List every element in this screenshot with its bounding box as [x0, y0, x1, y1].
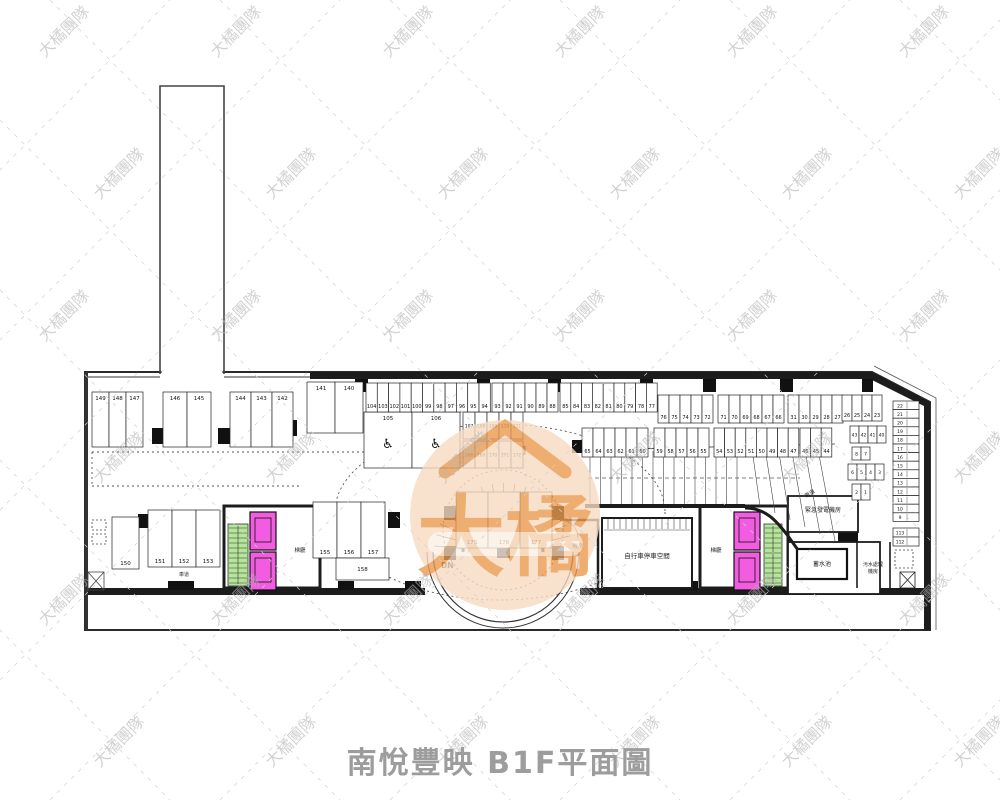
stall-number: 68 — [753, 415, 759, 421]
stall-number: 156 — [344, 550, 355, 556]
stall-number: 13 — [897, 481, 903, 487]
watermark-text: 大橘團隊 — [34, 286, 93, 345]
watermark-text: 大橘團隊 — [378, 286, 437, 345]
stall-number: 78 — [638, 404, 644, 410]
stall-number: 56 — [689, 449, 695, 455]
stall-number: 94 — [481, 404, 487, 410]
stall-number: 79 — [627, 404, 633, 410]
stall-number: 64 — [595, 449, 601, 455]
stall-number: 150 — [120, 561, 131, 567]
stall-number: 30 — [801, 415, 807, 421]
stall-number: 105 — [383, 416, 394, 422]
watermark-text: 大橘團隊 — [605, 144, 664, 203]
bike-room: 自行車停車空間 — [602, 518, 692, 588]
stall-number: 54 — [716, 449, 722, 455]
stall-number: 43 — [852, 433, 858, 439]
stall-number: 6 — [851, 470, 854, 476]
stall-number: 141 — [316, 386, 327, 392]
stall-number: 19 — [897, 429, 903, 435]
watermark-text: 大橘團隊 — [949, 144, 1000, 203]
stall-number: 93 — [494, 404, 500, 410]
stall-number: 59 — [656, 449, 662, 455]
stall-number: 100 — [412, 404, 422, 410]
stall-number: 76 — [660, 415, 666, 421]
stall-number: 15 — [897, 464, 903, 470]
page-title: 南悅豐映 B1F平面圖 — [0, 738, 1000, 782]
stall-number: 95 — [470, 404, 476, 410]
stall-number: 49 — [769, 449, 775, 455]
watermark-text: 大橘團隊 — [550, 286, 609, 345]
watermark-text: 大橘團隊 — [777, 144, 836, 203]
stall-number: 3 — [878, 470, 881, 476]
stall-number: 51 — [748, 449, 754, 455]
stall-number: 73 — [693, 415, 699, 421]
stall-number: 113 — [896, 531, 905, 537]
stall-number: 50 — [759, 449, 765, 455]
stall-number: 77 — [649, 404, 655, 410]
stall-number: 42 — [861, 433, 867, 439]
watermark-text: 大橘團隊 — [378, 2, 437, 61]
stall-number: 147 — [129, 396, 140, 402]
stall-number: 102 — [389, 404, 399, 410]
stall-number: 98 — [436, 404, 442, 410]
top-wall — [310, 372, 872, 379]
stall-number: 4 — [869, 470, 872, 476]
stall-number: 153 — [203, 559, 214, 565]
lane-label: 車道 — [179, 571, 189, 578]
stall-number: 29 — [812, 415, 818, 421]
watermark-text: 大橘團隊 — [261, 144, 320, 203]
stall-number: 99 — [425, 404, 431, 410]
stall-number: 71 — [720, 415, 726, 421]
right-lobby-label: 梯廳 — [710, 546, 722, 554]
watermark-text: 大橘團隊 — [206, 2, 265, 61]
stall-number: 14 — [897, 472, 903, 478]
watermark-text: 大橘團隊 — [89, 144, 148, 203]
watermark-text: 大橘團隊 — [894, 286, 953, 345]
stall-number: 7 — [864, 452, 867, 458]
stall-number: 53 — [727, 449, 733, 455]
stall-number: 26 — [844, 413, 850, 419]
stall-number: 155 — [320, 550, 331, 556]
stall-number: 66 — [775, 415, 781, 421]
stall-number: 140 — [344, 386, 355, 392]
stall-number: 92 — [505, 404, 511, 410]
stall-number: 90 — [527, 404, 533, 410]
stall-number: 20 — [897, 421, 903, 427]
watermark-text: 大橘團隊 — [894, 2, 953, 61]
watermark-text: 大橘團隊 — [722, 286, 781, 345]
stall-number: 63 — [606, 449, 612, 455]
stall-number: 48 — [780, 449, 786, 455]
watermark-text: 大橘團隊 — [722, 2, 781, 61]
stall-number: 142 — [277, 396, 288, 402]
left-wall — [85, 372, 88, 630]
sewage-room-label-2: 機房 — [868, 568, 878, 575]
stall-number: 97 — [448, 404, 454, 410]
stall-number: 75 — [671, 415, 677, 421]
stall-number: 25 — [854, 413, 860, 419]
stall-number: 85 — [562, 404, 568, 410]
stall-number: 80 — [616, 404, 622, 410]
watermark-text: 大橘團隊 — [433, 144, 492, 203]
stall-number: 27 — [834, 415, 840, 421]
water-tank-label: 蓄水池 — [813, 560, 831, 568]
stall-number: 101 — [401, 404, 411, 410]
stall-number: 11 — [897, 498, 903, 504]
stall-number: 28 — [823, 415, 829, 421]
stall-number: 17 — [897, 446, 903, 452]
watermark-text: 大橘團隊 — [949, 428, 1000, 487]
stall-number: 83 — [584, 404, 590, 410]
stall-number: 152 — [179, 559, 190, 565]
stall-number: 74 — [682, 415, 688, 421]
stall-number: 8 — [855, 452, 858, 458]
stall-number: 2 — [855, 490, 858, 496]
floor-plan-page: { "title": { "text": "南悅豐映 B1F平面圖", "col… — [0, 0, 1000, 800]
stall-number: 148 — [112, 396, 123, 402]
stall-number: 65 — [584, 449, 590, 455]
parking-stall — [893, 513, 919, 522]
stall-number: 146 — [170, 396, 181, 402]
wheelchair-icon: ♿ — [382, 437, 394, 452]
stall-number: 62 — [617, 449, 623, 455]
watermark-white-band — [428, 532, 583, 556]
stall-number: 84 — [573, 404, 579, 410]
stall-number: 106 — [431, 416, 442, 422]
stall-number: 143 — [256, 396, 267, 402]
stall-number: 70 — [731, 415, 737, 421]
stall-number: 21 — [897, 412, 903, 418]
stall-number: 69 — [742, 415, 748, 421]
stall-number: 104 — [367, 404, 377, 410]
stall-number: 112 — [896, 540, 905, 546]
stall-number: 24 — [864, 413, 870, 419]
stall-number: 145 — [194, 396, 205, 402]
stall-number: 10 — [897, 507, 903, 513]
stall-number: 144 — [235, 396, 246, 402]
watermark-text: 大橘團隊 — [34, 2, 93, 61]
stall-number: 103 — [378, 404, 388, 410]
stall-number: 5 — [860, 470, 863, 476]
sewage-room-label-1: 污水處理 — [863, 561, 883, 568]
stall-number: 12 — [897, 489, 903, 495]
left-core: 梯廳 — [224, 506, 320, 590]
stall-number: 157 — [368, 550, 379, 556]
watermark-text: 大橘團隊 — [550, 2, 609, 61]
stall-number: 57 — [678, 449, 684, 455]
stall-number: 88 — [549, 404, 555, 410]
stall-number: 151 — [155, 559, 166, 565]
stall-number: 82 — [595, 404, 601, 410]
floor-plan-drawing: 梯廳 梯廳 自行車停車空間 機房 緊急發電機房 蓄水池 污水處理 機房 — [0, 0, 1000, 800]
stall-number: 89 — [538, 404, 544, 410]
stall-number: 18 — [897, 438, 903, 444]
stall-number: 41 — [870, 433, 876, 439]
stall-number: 158 — [357, 567, 368, 573]
stall-number: 149 — [95, 396, 106, 402]
generator-room — [788, 496, 858, 532]
stall-number: 58 — [667, 449, 673, 455]
stall-number: 96 — [459, 404, 465, 410]
stall-number: 91 — [516, 404, 522, 410]
stall-number: 9 — [899, 515, 902, 521]
stall-number: 23 — [874, 413, 880, 419]
stall-number: 31 — [790, 415, 796, 421]
stall-number: 55 — [700, 449, 706, 455]
stall-number: 40 — [879, 433, 885, 439]
stall-number: 67 — [764, 415, 770, 421]
generator-room-label: 緊急發電機房 — [805, 506, 841, 514]
stall-number: 72 — [704, 415, 710, 421]
stall-number: 22 — [897, 403, 903, 409]
